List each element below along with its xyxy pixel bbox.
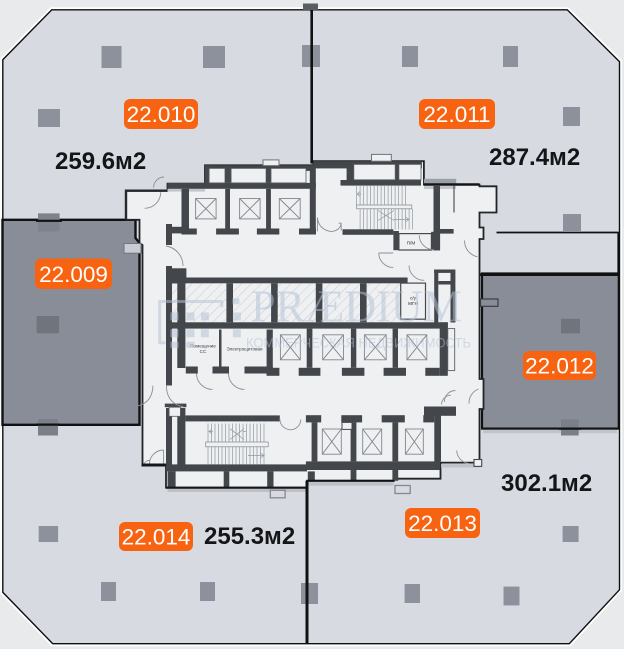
svg-text:КОММЕРЧЕСКАЯ НЕДВИЖИМОСТЬ: КОММЕРЧЕСКАЯ НЕДВИЖИМОСТЬ [246,335,471,351]
svg-text:П/М: П/М [407,241,416,246]
svg-text:22.013: 22.013 [408,511,477,536]
svg-text:302.1м2: 302.1м2 [501,470,592,497]
svg-text:287.4м2: 287.4м2 [489,144,580,171]
svg-text:22.010: 22.010 [127,102,196,127]
svg-text:22.009: 22.009 [39,262,108,287]
svg-text:259.6м2: 259.6м2 [55,148,146,175]
svg-text:22.014: 22.014 [122,525,191,550]
svg-text:22.011: 22.011 [423,102,490,127]
svg-text:СС: СС [200,349,207,354]
svg-text:PRÆDIUM: PRÆDIUM [251,282,462,332]
svg-text:22.012: 22.012 [525,354,594,379]
svg-text:255.3м2: 255.3м2 [204,523,295,550]
